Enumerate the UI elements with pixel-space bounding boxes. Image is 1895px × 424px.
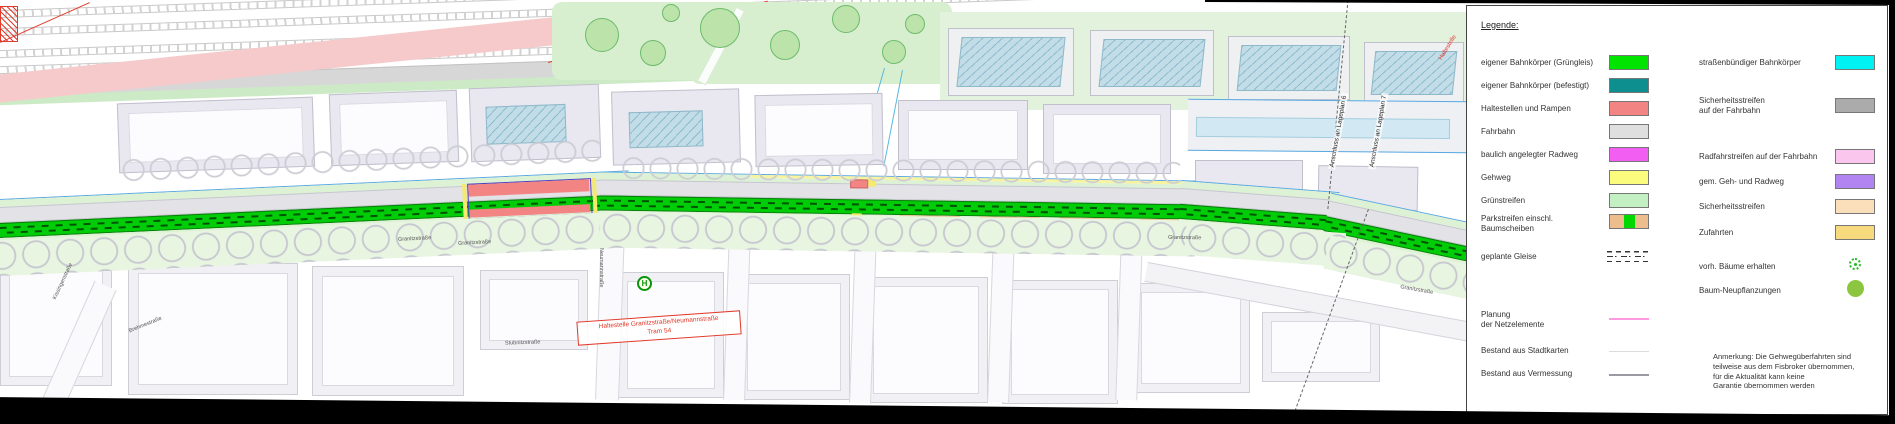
building-block bbox=[480, 270, 588, 350]
tree-row bbox=[600, 211, 1195, 256]
legend-item-label: vorh. Bäume erhalten bbox=[1699, 262, 1776, 272]
legend-item-label: Zufahrten bbox=[1699, 228, 1733, 238]
right-corridor bbox=[1188, 99, 1470, 153]
legend-item-label: eigener Bahnkörper (befestigt) bbox=[1481, 81, 1589, 91]
building-block bbox=[128, 263, 298, 395]
legend-swatch-tree-cell bbox=[1624, 215, 1635, 228]
building-block bbox=[1090, 30, 1214, 96]
legend-item-label: Planung bbox=[1481, 310, 1510, 319]
water-strip bbox=[1196, 117, 1450, 139]
building-block bbox=[312, 266, 464, 396]
courtyard bbox=[322, 276, 454, 386]
street-label: Neumannstraße bbox=[598, 248, 604, 287]
park-tree bbox=[905, 14, 925, 34]
legend-swatch bbox=[1609, 78, 1649, 93]
building-block bbox=[611, 88, 741, 165]
tree-keep-icon bbox=[1849, 258, 1861, 270]
legend-swatch bbox=[1609, 170, 1649, 185]
legend-item-label: gem. Geh- und Radweg bbox=[1699, 177, 1784, 187]
street-label: Stubnitzstraße bbox=[505, 339, 541, 346]
legend-item-label: Planung der Netzelemente bbox=[1481, 310, 1544, 329]
park-tree bbox=[700, 8, 740, 48]
park-tree bbox=[832, 5, 860, 33]
street-label: Granitzstraße bbox=[1168, 235, 1201, 242]
legend-swatch-parkstreifen bbox=[1609, 214, 1649, 229]
park-tree bbox=[585, 18, 619, 52]
tree-new-icon bbox=[1847, 280, 1864, 297]
tree-row bbox=[620, 156, 1180, 185]
legend-swatch bbox=[1609, 101, 1649, 116]
building-block bbox=[948, 28, 1074, 96]
park-tree bbox=[640, 40, 666, 66]
blue-roof bbox=[1098, 39, 1205, 87]
legend-item-label: Radfahrstreifen auf der Fahrbahn bbox=[1699, 152, 1817, 162]
legend-item-label: Sicherheitsstreifen auf der Fahrbahn bbox=[1699, 96, 1765, 115]
legend-item-label: Sicherheitsstreifen bbox=[1699, 202, 1765, 212]
legend-item-label: Baumscheiben bbox=[1481, 224, 1534, 233]
legend-swatch bbox=[1835, 55, 1875, 70]
page-edge-right bbox=[1889, 0, 1895, 424]
haltestelle-sign: H bbox=[637, 276, 652, 291]
legend-line-symbol bbox=[1609, 318, 1649, 320]
courtyard bbox=[873, 286, 979, 394]
courtyard bbox=[138, 273, 288, 385]
park-tree bbox=[662, 4, 680, 22]
legend-item-label: baulich angelegter Radweg bbox=[1481, 150, 1578, 160]
legend-item-label: Bestand aus Stadtkarten bbox=[1481, 346, 1569, 356]
legend-line-symbol bbox=[1609, 374, 1649, 376]
legend-item-label: Parkstreifen einschl. bbox=[1481, 214, 1553, 223]
legend-swatch bbox=[1835, 199, 1875, 214]
courtyard bbox=[1141, 292, 1241, 384]
blue-roof bbox=[1237, 45, 1342, 91]
building-block bbox=[1002, 280, 1118, 404]
legend-item-label: Parkstreifen einschl. Baumscheiben bbox=[1481, 214, 1553, 233]
courtyard bbox=[489, 279, 579, 341]
blue-roof bbox=[956, 37, 1065, 87]
legend-item-label: geplante Gleise bbox=[1481, 252, 1537, 262]
legend-item-label: auf der Fahrbahn bbox=[1699, 106, 1760, 115]
legend-gleis-symbol bbox=[1607, 251, 1649, 262]
park-tree bbox=[882, 40, 906, 64]
building-block bbox=[864, 277, 988, 403]
blue-line bbox=[1188, 150, 1470, 153]
courtyard bbox=[1053, 114, 1161, 164]
courtyard bbox=[747, 283, 841, 391]
legend-item-label: der Netzelemente bbox=[1481, 320, 1544, 329]
legend-swatch bbox=[1609, 55, 1649, 70]
legend-swatch bbox=[1609, 193, 1649, 208]
legend-swatch bbox=[1835, 98, 1875, 113]
legend-note: Anmerkung: Die Gehwegüberfahrten sind te… bbox=[1713, 352, 1885, 391]
park-tree bbox=[770, 30, 800, 60]
legend-swatch bbox=[1835, 174, 1875, 189]
legend-item-label: eigener Bahnkörper (Grüngleis) bbox=[1481, 58, 1593, 68]
legend-item-label: Sicherheitsstreifen bbox=[1699, 96, 1765, 105]
legend-item-label: Baum-Neupflanzungen bbox=[1699, 286, 1781, 296]
site-plan-page: Granitzstraße Granitzstraße Granitzstraß… bbox=[0, 0, 1895, 424]
legend-swatch bbox=[1609, 124, 1649, 139]
legend-swatch bbox=[1835, 225, 1875, 240]
courtyard bbox=[1271, 321, 1371, 373]
legend-swatch bbox=[1609, 147, 1649, 162]
legend-item-label: Fahrbahn bbox=[1481, 127, 1515, 137]
building-block bbox=[738, 274, 850, 400]
legend-item-label: Bestand aus Vermessung bbox=[1481, 369, 1572, 379]
legend-item-label: Grünstreifen bbox=[1481, 196, 1525, 206]
legend-item-label: Haltestellen und Rampen bbox=[1481, 104, 1571, 114]
courtyard bbox=[1011, 289, 1109, 395]
blue-roof bbox=[485, 104, 566, 145]
legend-panel: Legende: eigener Bahnkörper (Grüngleis) … bbox=[1466, 5, 1888, 415]
building-block bbox=[1132, 283, 1250, 393]
courtyard bbox=[908, 110, 1018, 160]
building-block bbox=[1262, 312, 1380, 382]
blue-roof bbox=[629, 110, 704, 148]
legend-item-label: Gehweg bbox=[1481, 173, 1511, 183]
legend-line-symbol bbox=[1609, 351, 1649, 352]
courtyard bbox=[765, 103, 874, 157]
legend-swatch bbox=[1835, 149, 1875, 164]
building-block bbox=[1228, 36, 1350, 100]
legend-title: Legende: bbox=[1481, 20, 1519, 30]
legend-item-label: straßenbündiger Bahnkörper bbox=[1699, 58, 1801, 68]
